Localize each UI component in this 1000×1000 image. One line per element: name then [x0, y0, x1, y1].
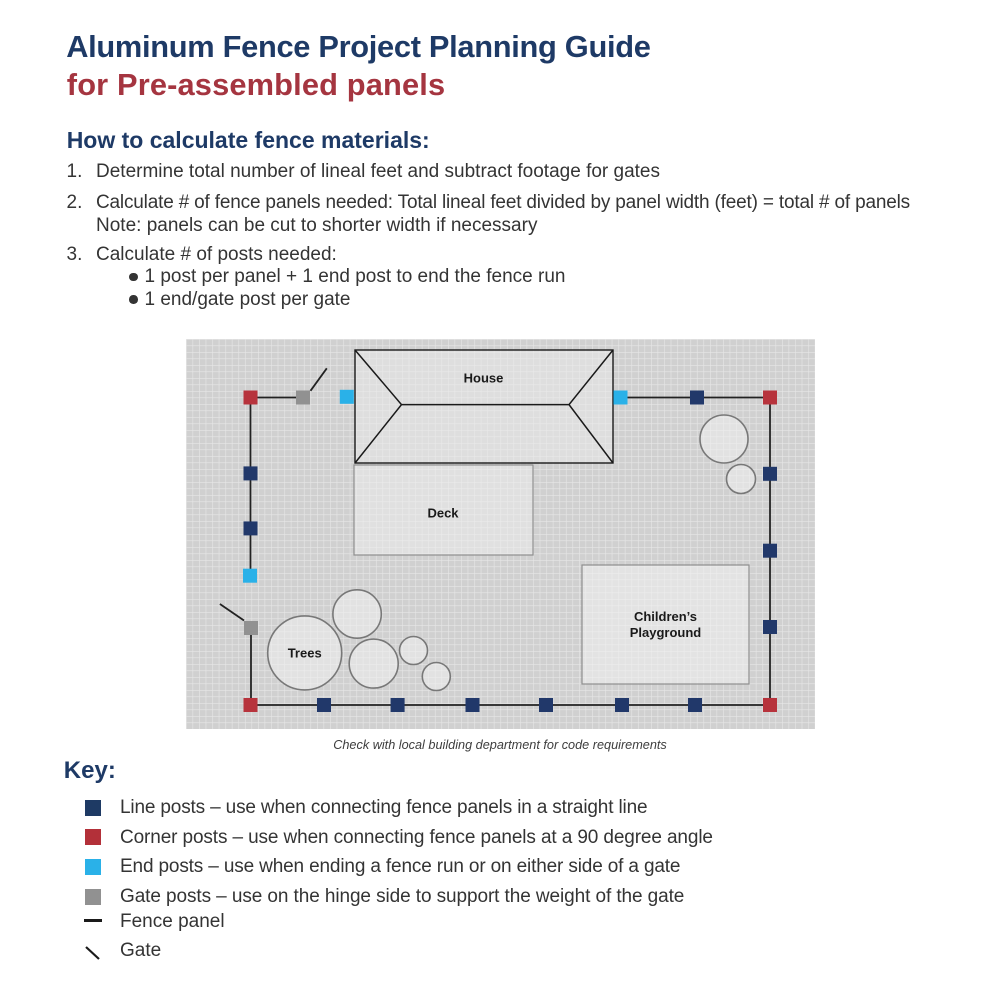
svg-text:Children’s: Children’s [634, 609, 697, 624]
svg-text:House: House [464, 371, 504, 386]
svg-text:Deck: Deck [427, 506, 459, 521]
svg-text:Trees: Trees [288, 646, 322, 661]
svg-text:Playground: Playground [630, 625, 702, 640]
